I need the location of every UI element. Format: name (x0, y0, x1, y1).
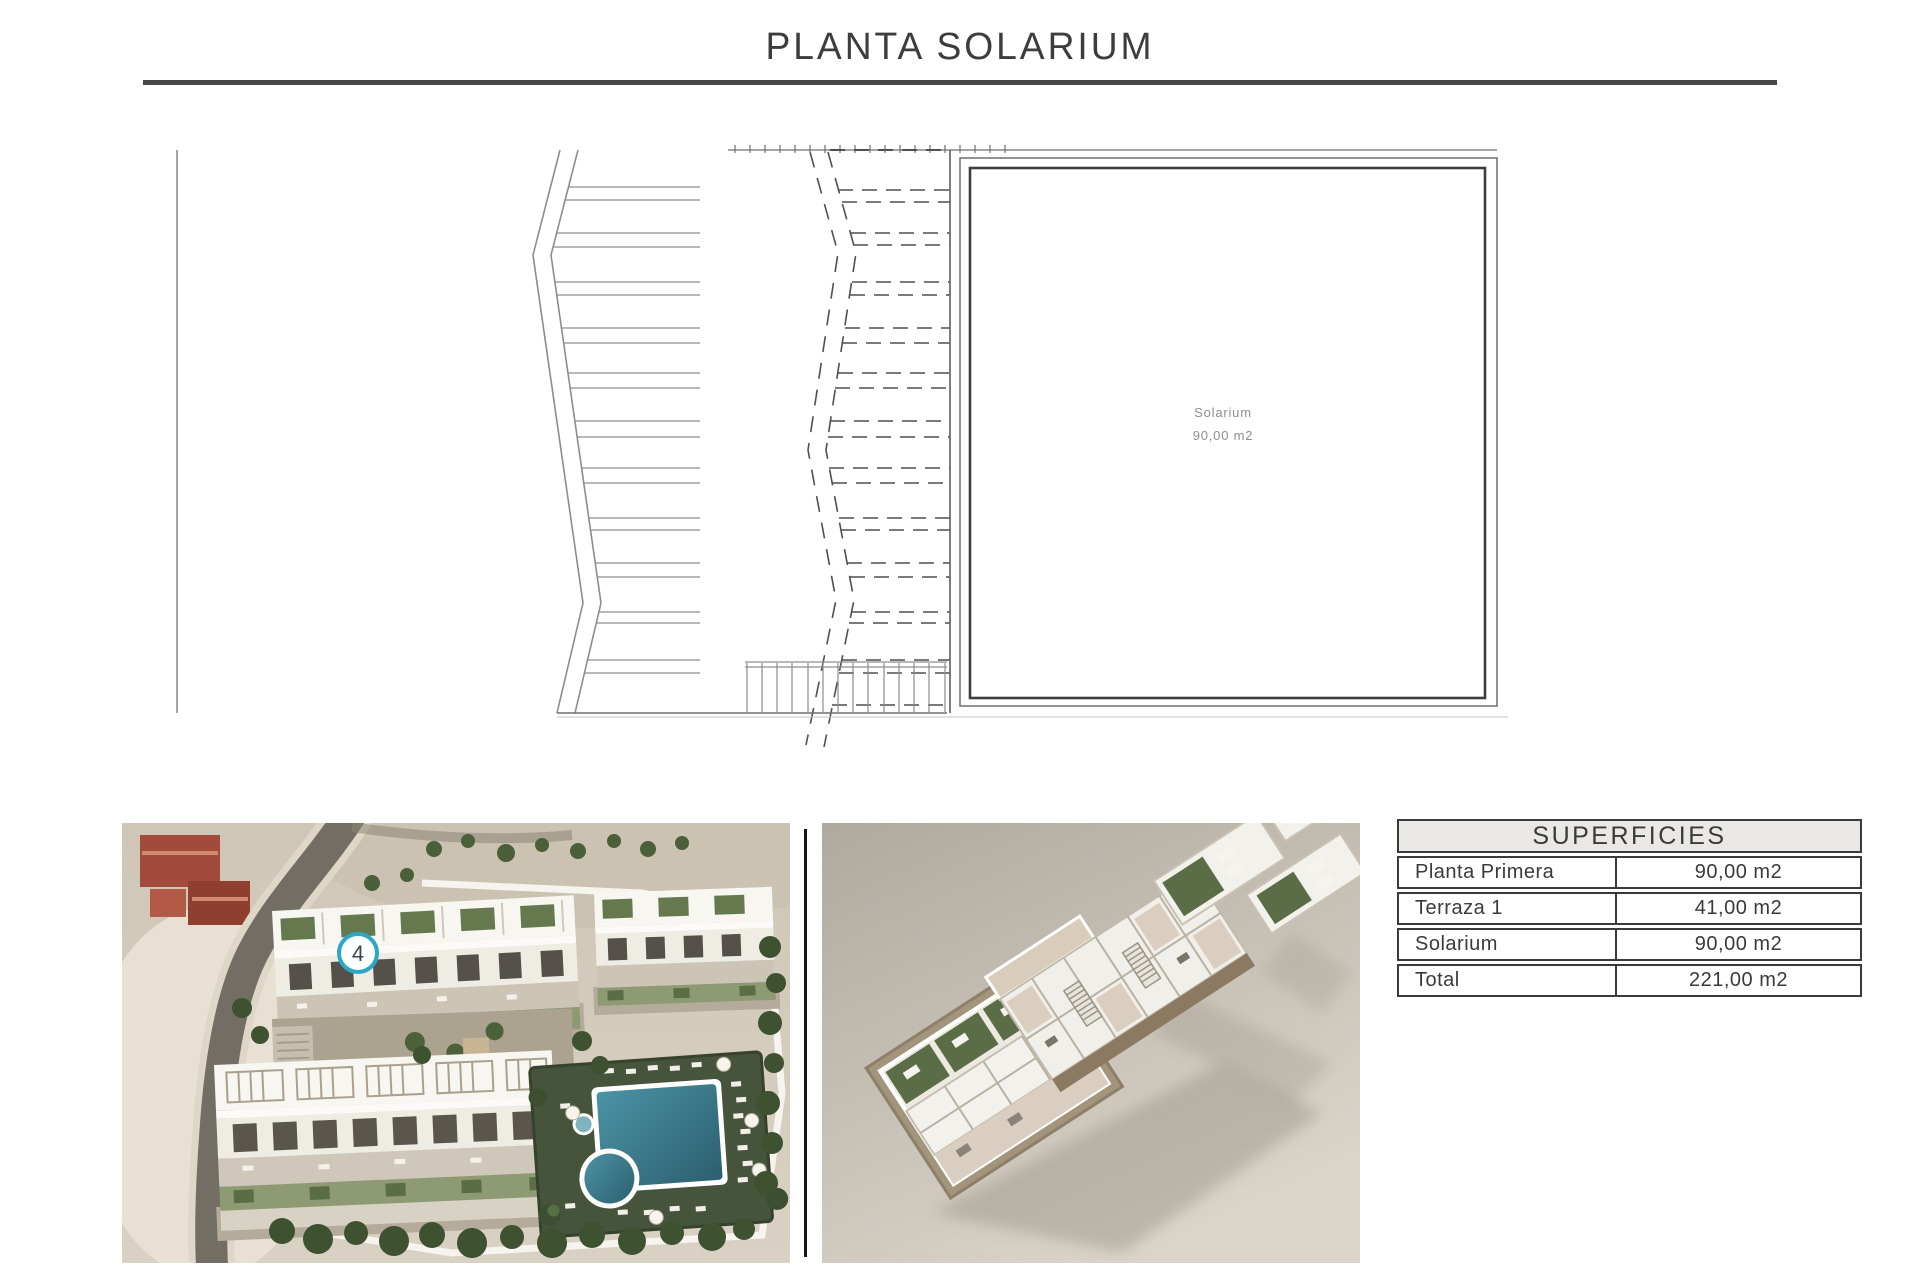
unit-marker: 4 (339, 934, 377, 972)
room-name-label: Solarium (1194, 405, 1252, 420)
row-value: 90,00 m2 (1617, 930, 1860, 959)
plan-dashed-zigzag-wall (806, 152, 856, 747)
room-area-label: 90,00 m2 (1193, 428, 1254, 443)
row-label: Solarium (1399, 930, 1617, 959)
render-divider-line (804, 829, 807, 1257)
row-label: Terraza 1 (1399, 894, 1617, 923)
row-label: Planta Primera (1399, 858, 1617, 887)
row-value: 221,00 m2 (1617, 966, 1860, 995)
table-row: Planta Primera 90,00 m2 (1397, 856, 1862, 889)
row-value: 41,00 m2 (1617, 894, 1860, 923)
surfaces-table-header: SUPERFICIES (1397, 819, 1862, 853)
brochure-page: PLANTA SOLARIUM (0, 0, 1920, 1280)
table-row: Terraza 1 41,00 m2 (1397, 892, 1862, 925)
surfaces-table: SUPERFICIES Planta Primera 90,00 m2 Terr… (1397, 819, 1862, 997)
table-row: Solarium 90,00 m2 (1397, 928, 1862, 961)
plan-solid-step-lines (553, 187, 700, 673)
townhouse-row-lower (210, 1050, 565, 1241)
plan-solarium-room: Solarium 90,00 m2 (960, 158, 1497, 706)
isometric-floorplan-render (822, 823, 1360, 1263)
plan-dashed-step-lines (828, 190, 950, 705)
pool-area (526, 1050, 789, 1237)
plan-solid-zigzag-wall (533, 150, 601, 713)
row-label: Total (1399, 966, 1617, 995)
table-row: Total 221,00 m2 (1397, 964, 1862, 997)
unit-marker-number: 4 (352, 941, 364, 966)
row-value: 90,00 m2 (1617, 858, 1860, 887)
townhouse-row-upper-right (590, 887, 780, 1015)
aerial-site-render: 4 (122, 823, 790, 1263)
